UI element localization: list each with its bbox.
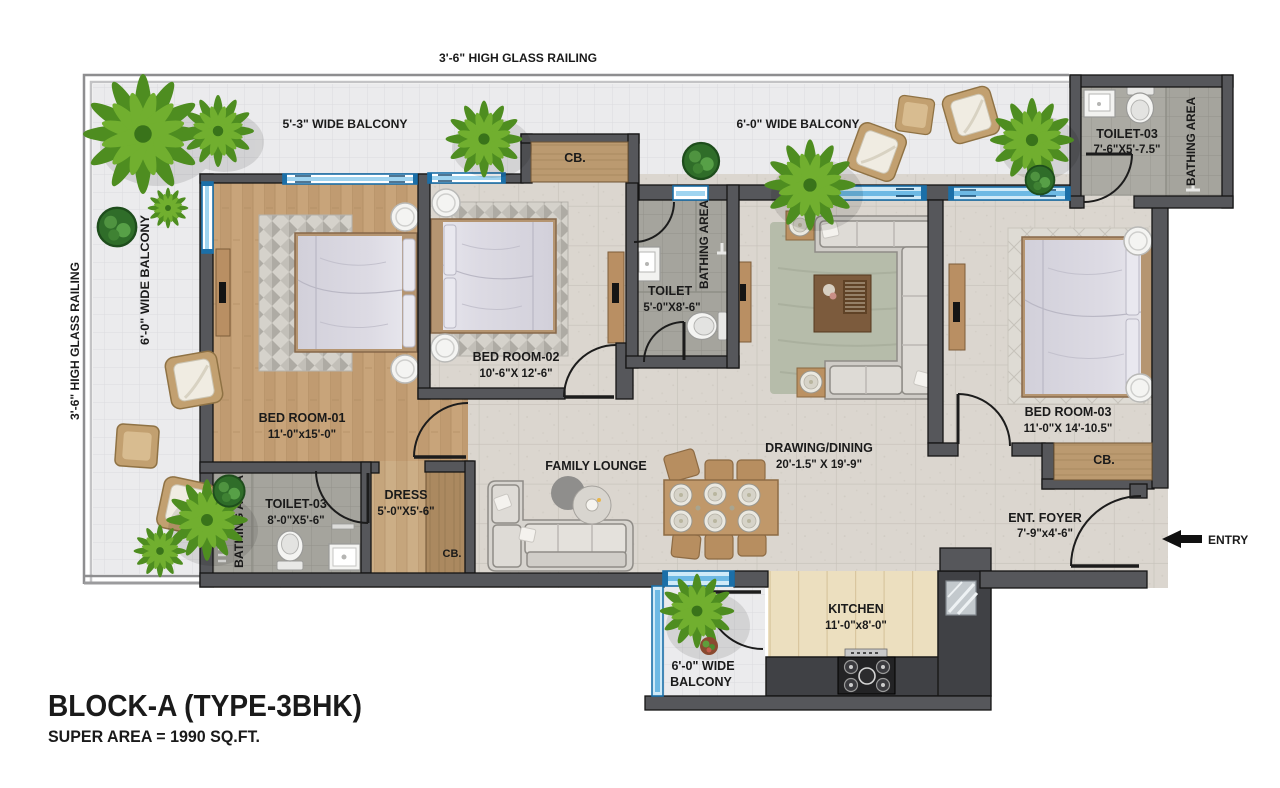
svg-text:3'-6" HIGH GLASS RAILING: 3'-6" HIGH GLASS RAILING [439, 51, 597, 65]
svg-text:5'-0"X5'-6": 5'-0"X5'-6" [377, 506, 434, 518]
svg-text:6'-0" WIDE BALCONY: 6'-0" WIDE BALCONY [737, 117, 860, 131]
svg-text:3'-6" HIGH GLASS RAILING: 3'-6" HIGH GLASS RAILING [68, 262, 82, 420]
svg-text:TOILET: TOILET [648, 284, 693, 298]
svg-text:FAMILY LOUNGE: FAMILY LOUNGE [545, 459, 646, 473]
svg-text:6'-0" WIDE: 6'-0" WIDE [671, 659, 734, 673]
svg-text:BED ROOM-03: BED ROOM-03 [1025, 405, 1112, 419]
svg-text:20'-1.5" X 19'-9": 20'-1.5" X 19'-9" [776, 459, 862, 471]
svg-text:CB.: CB. [1093, 453, 1115, 467]
svg-text:8'-0"X5'-6": 8'-0"X5'-6" [267, 515, 324, 527]
svg-text:TOILET-03: TOILET-03 [1096, 127, 1158, 141]
svg-text:6'-0" WIDE BALCONY: 6'-0" WIDE BALCONY [138, 215, 152, 345]
svg-text:ENTRY: ENTRY [1208, 533, 1248, 547]
svg-text:5'-3" WIDE BALCONY: 5'-3" WIDE BALCONY [283, 117, 408, 131]
svg-text:TOILET-03: TOILET-03 [265, 497, 327, 511]
svg-text:11'-0"X 14'-10.5": 11'-0"X 14'-10.5" [1024, 423, 1113, 435]
svg-text:7'-9"x4'-6": 7'-9"x4'-6" [1017, 528, 1073, 540]
svg-text:10'-6"X 12'-6": 10'-6"X 12'-6" [479, 368, 552, 380]
svg-text:BED ROOM-01: BED ROOM-01 [259, 411, 346, 425]
svg-text:7'-6"X5'-7.5": 7'-6"X5'-7.5" [1094, 144, 1161, 156]
svg-text:DRAWING/DINING: DRAWING/DINING [765, 441, 873, 455]
svg-text:BATHING AREA: BATHING AREA [699, 200, 711, 289]
svg-text:DRESS: DRESS [384, 488, 427, 502]
svg-text:BLOCK-A (TYPE-3BHK): BLOCK-A (TYPE-3BHK) [48, 689, 362, 723]
svg-text:SUPER AREA = 1990 SQ.FT.: SUPER AREA = 1990 SQ.FT. [48, 728, 260, 746]
svg-text:11'-0"x8'-0": 11'-0"x8'-0" [825, 620, 887, 632]
svg-text:5'-0"X8'-6": 5'-0"X8'-6" [643, 302, 700, 314]
svg-text:ENT. FOYER: ENT. FOYER [1008, 511, 1082, 525]
svg-text:BED ROOM-02: BED ROOM-02 [473, 350, 560, 364]
svg-text:CB.: CB. [443, 548, 462, 560]
svg-text:KITCHEN: KITCHEN [828, 602, 884, 616]
svg-text:BATHING AREA: BATHING AREA [1186, 97, 1198, 186]
svg-text:CB.: CB. [564, 151, 586, 165]
svg-text:BALCONY: BALCONY [670, 675, 732, 689]
svg-text:11'-0"x15'-0": 11'-0"x15'-0" [268, 429, 336, 441]
